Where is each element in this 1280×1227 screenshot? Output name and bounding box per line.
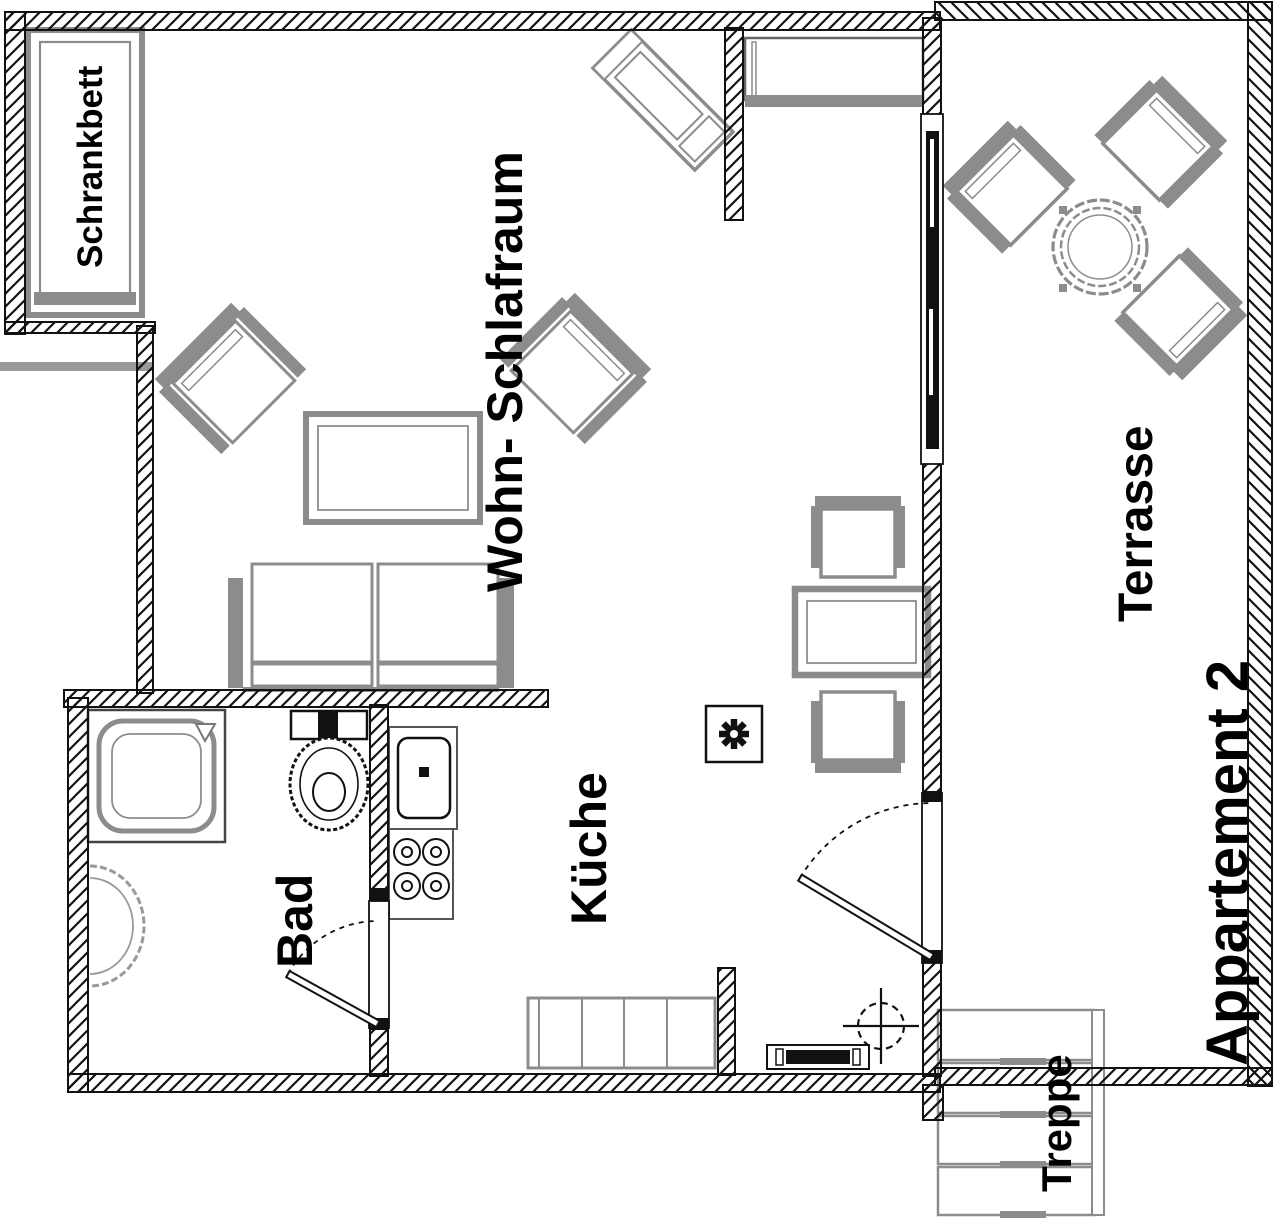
wall-kitchen-stub xyxy=(718,968,735,1075)
stove-symbol xyxy=(706,706,762,762)
washbasin xyxy=(90,866,144,986)
wall-tab-below xyxy=(923,1085,943,1120)
dining-chair-top xyxy=(811,496,905,577)
wall-left-mid xyxy=(137,326,153,693)
terrace-door xyxy=(798,793,942,963)
coffee-table xyxy=(306,414,480,522)
wall-left-alcove xyxy=(5,12,25,334)
tv-board xyxy=(593,30,733,170)
label-kueche: Küche xyxy=(561,772,617,925)
wall-terrace-divider-lower xyxy=(923,962,941,1076)
terrace-door-leaf xyxy=(798,875,934,960)
kitchen-stove xyxy=(389,829,453,919)
shower xyxy=(88,710,225,842)
wall-bad-right-lower xyxy=(370,1026,388,1076)
sofa xyxy=(228,564,514,692)
wall-partition-stub xyxy=(725,28,743,220)
label-terrasse: Terrasse xyxy=(1110,425,1163,622)
stair-stringer xyxy=(1092,1010,1104,1215)
wall-alcove-bottom xyxy=(5,322,155,333)
label-appartement-2: Appartement 2 xyxy=(1195,660,1260,1066)
floor-plan-drawing: Schrankbett Wohn- Schlafraum Küche Bad T… xyxy=(0,0,1280,1227)
floor-plan: Schrankbett Wohn- Schlafraum Küche Bad T… xyxy=(0,0,1280,1227)
terrace-door-swing-arc xyxy=(800,803,932,878)
label-schrankbett: Schrankbett xyxy=(71,65,110,268)
armchair-left xyxy=(151,299,307,455)
label-treppe: Treppe xyxy=(1033,1054,1080,1192)
terrace-table xyxy=(1053,200,1147,294)
sliding-window xyxy=(921,114,943,464)
label-bad: Bad xyxy=(267,874,323,968)
dining-chair-bottom xyxy=(811,692,905,773)
wall-left-lower xyxy=(68,698,88,1092)
party-wall-line xyxy=(0,362,152,371)
wall-terrace-divider-upper xyxy=(923,18,941,118)
wall-top-terrace xyxy=(935,2,1272,20)
wall-bad-right-upper xyxy=(370,705,388,900)
wall-bottom xyxy=(68,1074,940,1092)
stair-step xyxy=(938,1010,1094,1060)
dining-table xyxy=(795,589,928,675)
bad-door-opening xyxy=(369,901,389,1028)
wall-terrace-bottom xyxy=(935,1068,1272,1085)
kitchen-sink xyxy=(389,727,457,829)
walls xyxy=(5,2,1272,1120)
radiator xyxy=(767,1045,869,1069)
sideboard xyxy=(745,38,923,107)
terrace-door-opening xyxy=(922,793,942,963)
label-wohn-schlafraum: Wohn- Schlafraum xyxy=(477,151,533,592)
terrace-chair-topright xyxy=(1094,71,1231,208)
bad-door-leaf xyxy=(286,971,379,1027)
wall-terrace-divider-mid xyxy=(923,458,941,792)
wall-bad-top xyxy=(64,690,548,707)
toilet xyxy=(290,711,368,830)
kitchen-counter xyxy=(528,998,715,1068)
wall-top xyxy=(5,12,940,30)
